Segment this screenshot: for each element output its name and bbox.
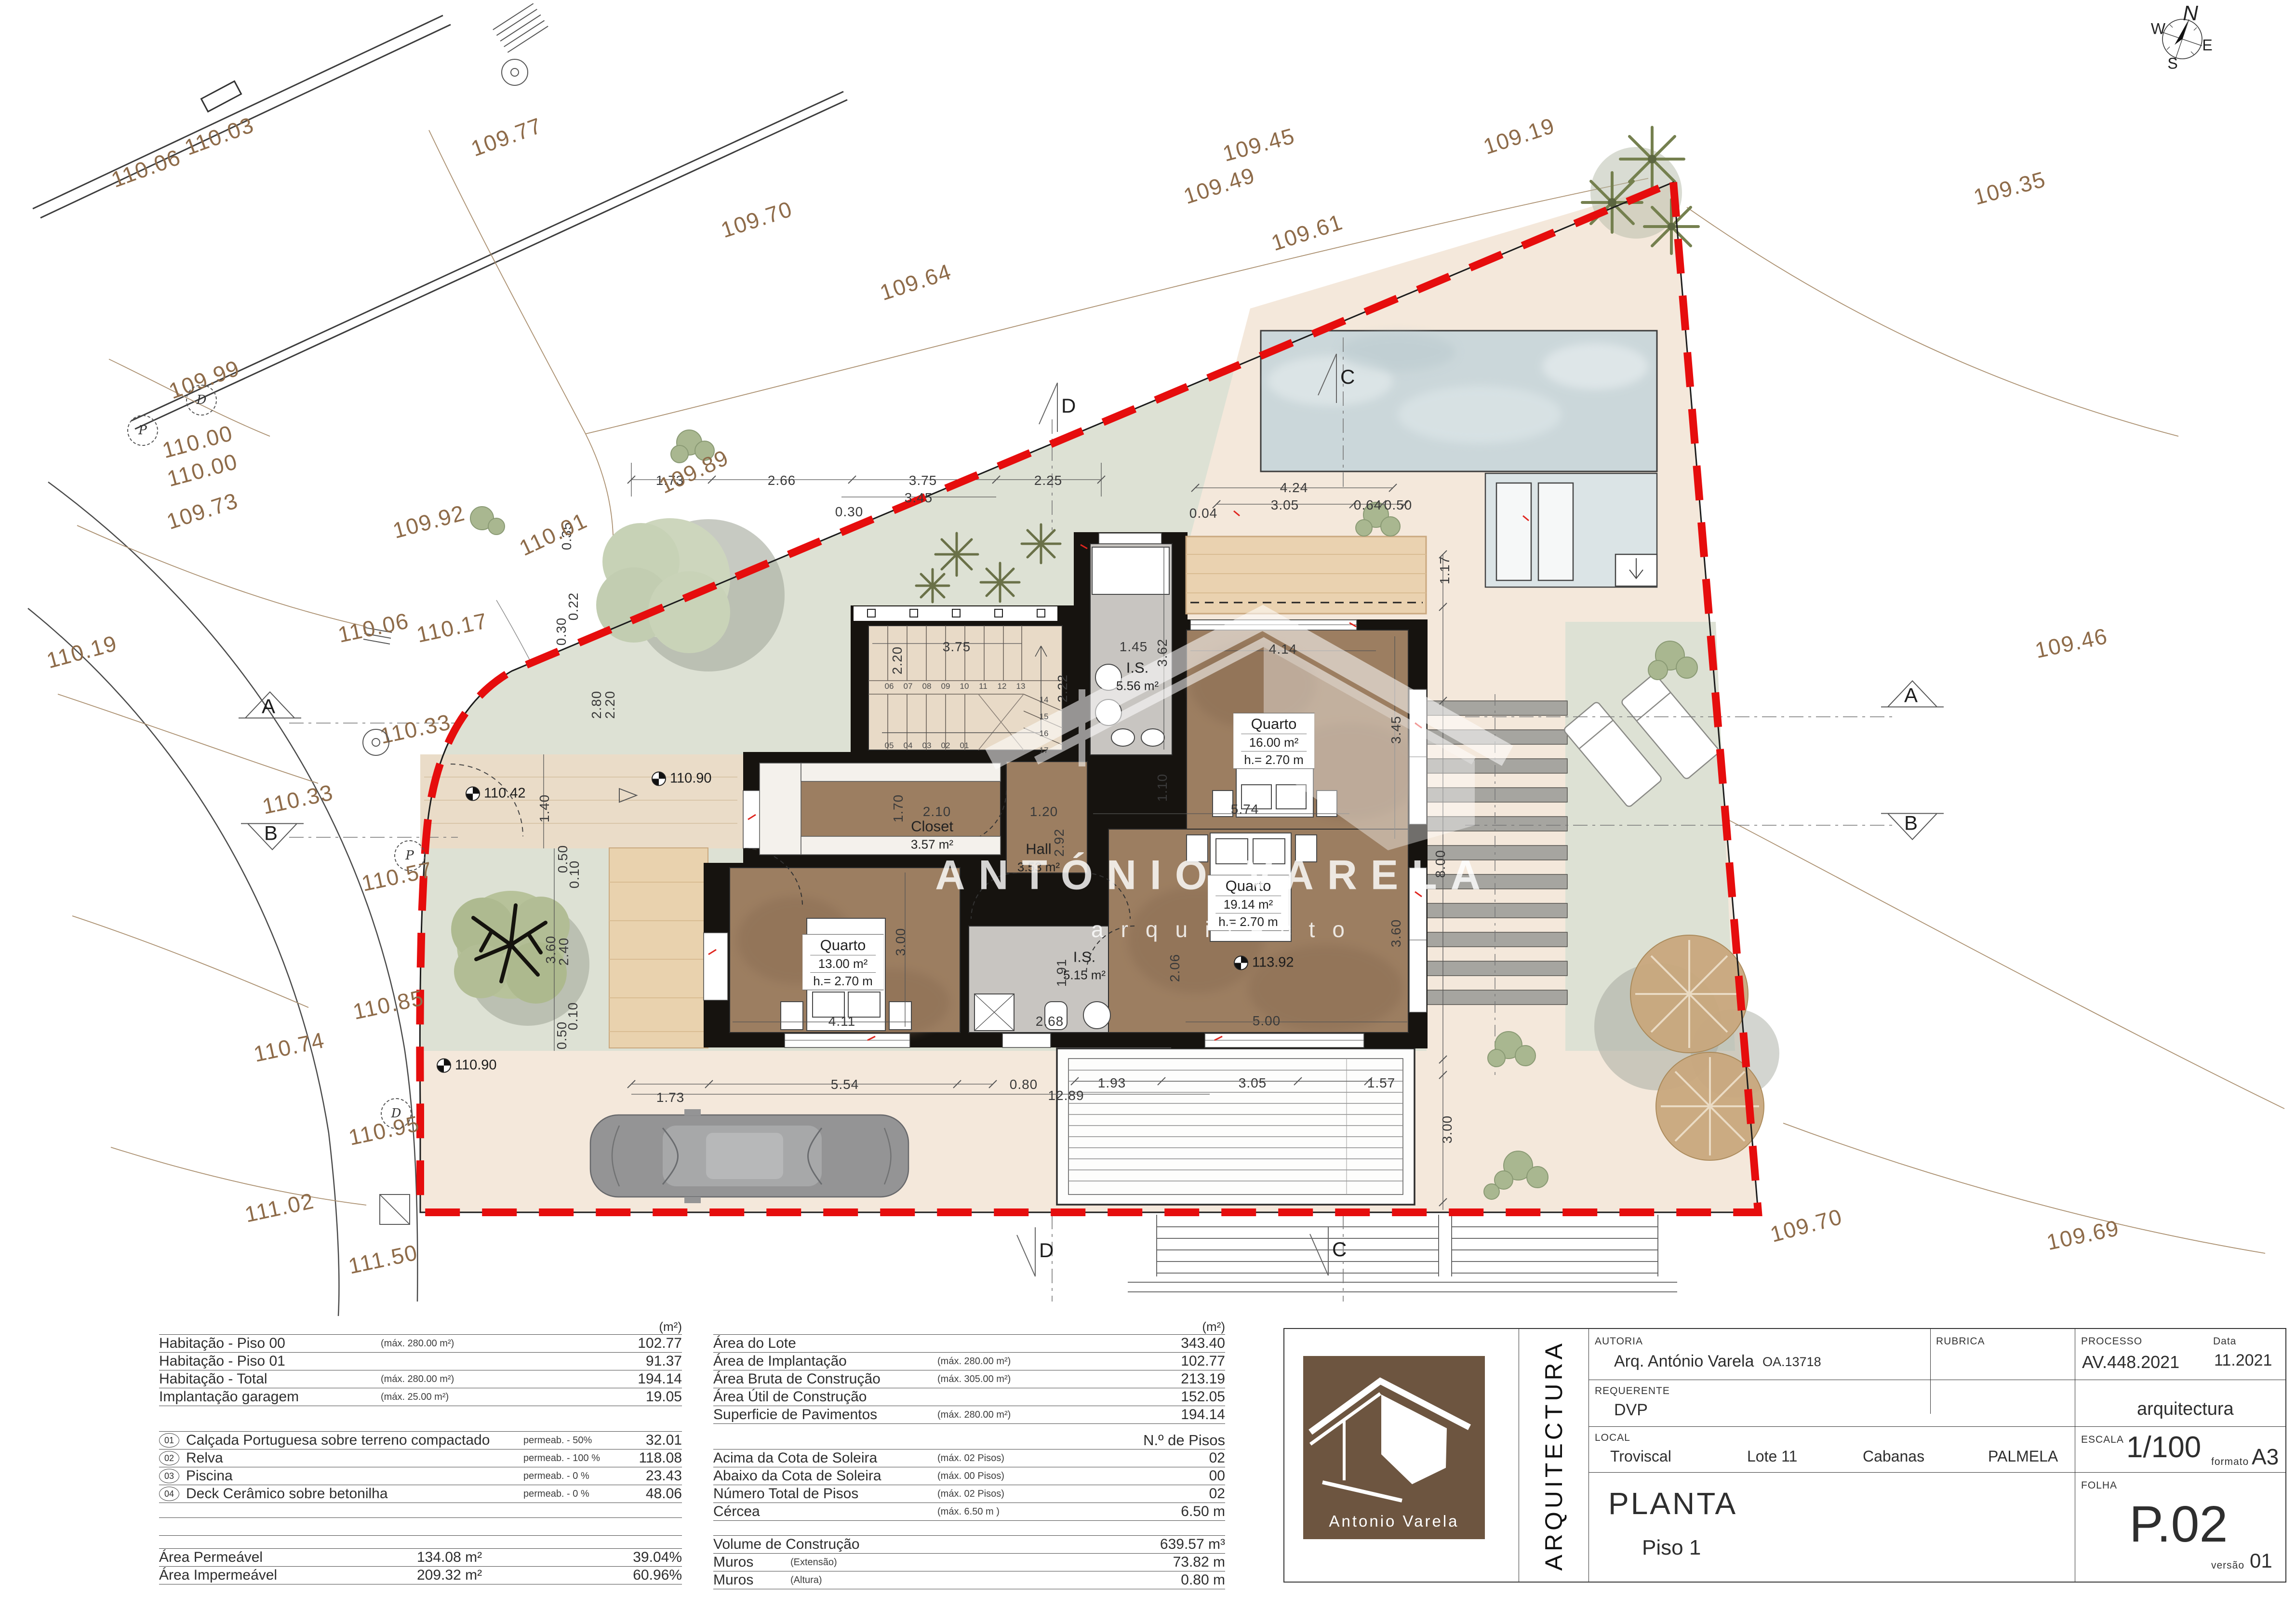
watermark-name: ANTÓNIO VARELA [935,852,1494,899]
requerente-value: DVP [1614,1401,1648,1420]
sheet-title: PLANTA [1608,1486,1737,1521]
sheet-subtitle: Piso 1 [1642,1536,1701,1560]
table-row: Muros (Altura) 0.80 m [713,1571,1225,1589]
local-town: Troviscal [1610,1448,1671,1465]
processo-value: AV.448.2021 [2082,1352,2179,1372]
table-row: 04 Deck Cerâmico sobre betonilha permeab… [159,1485,682,1503]
table-row: Superficie de Pavimentos (máx. 280.00 m²… [713,1406,1225,1424]
autoria-reg: OA.13718 [1762,1355,1821,1369]
right-column-cell: PROCESSO AV.448.2021 Data 11.2021 arquit… [2075,1329,2285,1582]
local-label: LOCAL [1595,1432,1630,1444]
watermark-role: arquitecto [1091,916,1362,942]
architectural-plan-sheet: 1.732.663.752.254.240.303.453.050.640.50… [0,0,2296,1597]
table-row: Implantação garagem (máx. 25.00 m²) 19.0… [159,1388,682,1406]
folha-label: FOLHA [2081,1480,2117,1491]
unit-header: (m²) [1202,1319,1225,1334]
local-municipality: PALMELA [1988,1448,2058,1465]
table-row: Abaixo da Cota de Soleira (máx. 00 Pisos… [713,1467,1225,1485]
table-row: Área Útil de Construção 152.05 [713,1388,1225,1406]
rubrica-label: RUBRICA [1936,1336,1985,1347]
table-row: Área de Implantação (máx. 280.00 m²) 102… [713,1352,1225,1370]
table-row: 02 Relva permeab. - 100 % 118.08 [159,1449,682,1467]
table-row: Habitação - Piso 00 (máx. 280.00 m²) 102… [159,1334,682,1352]
folha-value: P.02 [2129,1495,2228,1554]
table-row: Número Total de Pisos (máx. 02 Pisos) 02 [713,1485,1225,1503]
areas-table: (m²) Habitação - Piso 00 (máx. 280.00 m²… [159,1322,682,1584]
formato-value: A3 [2252,1444,2279,1470]
table-row: 01 Calçada Portuguesa sobre terreno comp… [159,1431,682,1449]
table-row: Acima da Cota de Soleira (máx. 02 Pisos)… [713,1449,1225,1467]
formato-label: formato [2211,1456,2249,1468]
vertical-title-cell: ARQUITECTURA [1519,1329,1589,1582]
road-lines [33,15,847,429]
pool [1261,331,1657,471]
data-label: Data [2213,1336,2236,1347]
processo-label: PROCESSO [2081,1336,2142,1347]
table-row: Habitação - Piso 01 91.37 [159,1352,682,1370]
lot-table: (m²) Área do Lote 343.40 Área de Implant… [713,1322,1225,1589]
versao-value: 01 [2250,1549,2272,1572]
autoria-label: AUTORIA [1595,1336,1643,1347]
local-lot: Lote 11 [1747,1448,1797,1465]
floors-header: N.º de Pisos [713,1432,1225,1449]
escala-label: ESCALA [2081,1434,2124,1446]
table-row: Área Bruta de Construção (máx. 305.00 m²… [713,1370,1225,1388]
table-row: 03 Piscina permeab. - 0 % 23.43 [159,1467,682,1485]
hatch-patch [363,3,548,644]
title-block: Antonio Varela ARQUITECTURA AUTORIA Arq.… [1283,1328,2286,1583]
discipline-vertical: ARQUITECTURA [1540,1340,1568,1570]
table-row: Habitação - Total (máx. 280.00 m²) 194.1… [159,1370,682,1388]
versao-label: versão [2211,1560,2244,1571]
table-row: Cércea (máx. 6.50 m ) 6.50 m [713,1503,1225,1521]
fields-cell: AUTORIA Arq. António Varela OA.13718 RUB… [1589,1329,2075,1582]
logo-name: Antonio Varela [1303,1512,1485,1530]
table-row: Área do Lote 343.40 [713,1334,1225,1352]
garage-roof [1057,1048,1415,1205]
north-compass [2163,19,2202,59]
pool-equipment [1485,473,1657,587]
escala-value: 1/100 [2126,1430,2201,1464]
requerente-label: REQUERENTE [1595,1385,1670,1397]
local-parish: Cabanas [1863,1448,1924,1465]
table-row: Área Permeável 134.08 m² 39.04% [159,1548,682,1566]
architect-logo: Antonio Varela [1303,1356,1485,1539]
data-value: 11.2021 [2214,1351,2272,1370]
unit-header: (m²) [659,1319,682,1334]
table-row: Volume de Construção 639.57 m³ [713,1535,1225,1553]
autoria-value: Arq. António Varela [1614,1352,1754,1371]
table-row: Área Impermeável 209.32 m² 60.96% [159,1566,682,1584]
logo-cell: Antonio Varela [1284,1329,1519,1582]
table-row: Muros (Extensão) 73.82 m [713,1553,1225,1571]
road-culvert [201,81,241,111]
discipline-value: arquitectura [2137,1399,2234,1420]
car [590,1109,908,1203]
